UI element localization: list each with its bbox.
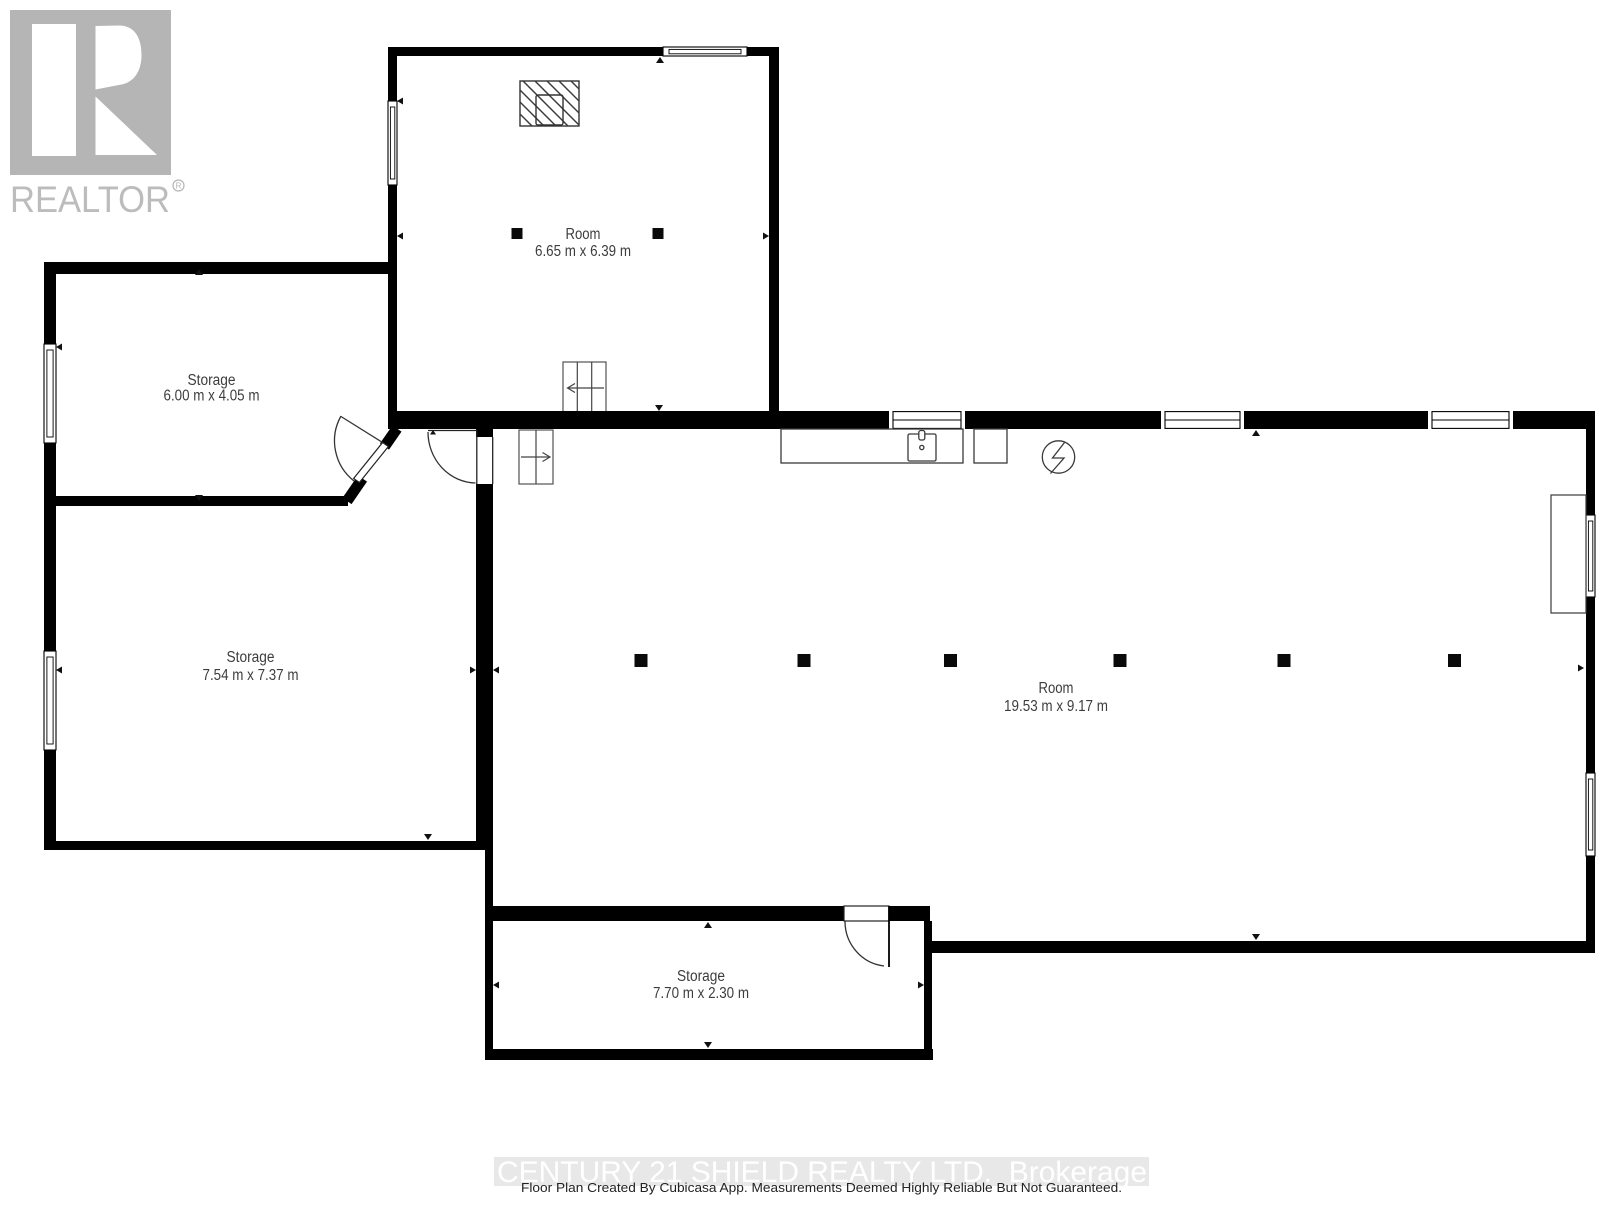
svg-text:REALTOR: REALTOR: [10, 179, 170, 220]
svg-text:Room: Room: [1039, 680, 1074, 697]
svg-text:19.53 m x 9.17 m: 19.53 m x 9.17 m: [1004, 698, 1108, 715]
svg-text:Floor Plan Created By Cubicasa: Floor Plan Created By Cubicasa App. Meas…: [521, 1180, 1122, 1195]
svg-text:7.70 m x 2.30 m: 7.70 m x 2.30 m: [653, 985, 749, 1002]
svg-text:6.00 m x 4.05 m: 6.00 m x 4.05 m: [164, 388, 260, 405]
svg-text:Room: Room: [566, 226, 601, 243]
svg-text:Storage: Storage: [188, 372, 236, 389]
svg-text:6.65 m x 6.39 m: 6.65 m x 6.39 m: [535, 243, 631, 260]
svg-text:R: R: [176, 182, 182, 191]
svg-text:7.54 m x 7.37 m: 7.54 m x 7.37 m: [203, 667, 299, 684]
svg-text:Storage: Storage: [677, 968, 725, 985]
svg-text:Storage: Storage: [227, 649, 275, 666]
